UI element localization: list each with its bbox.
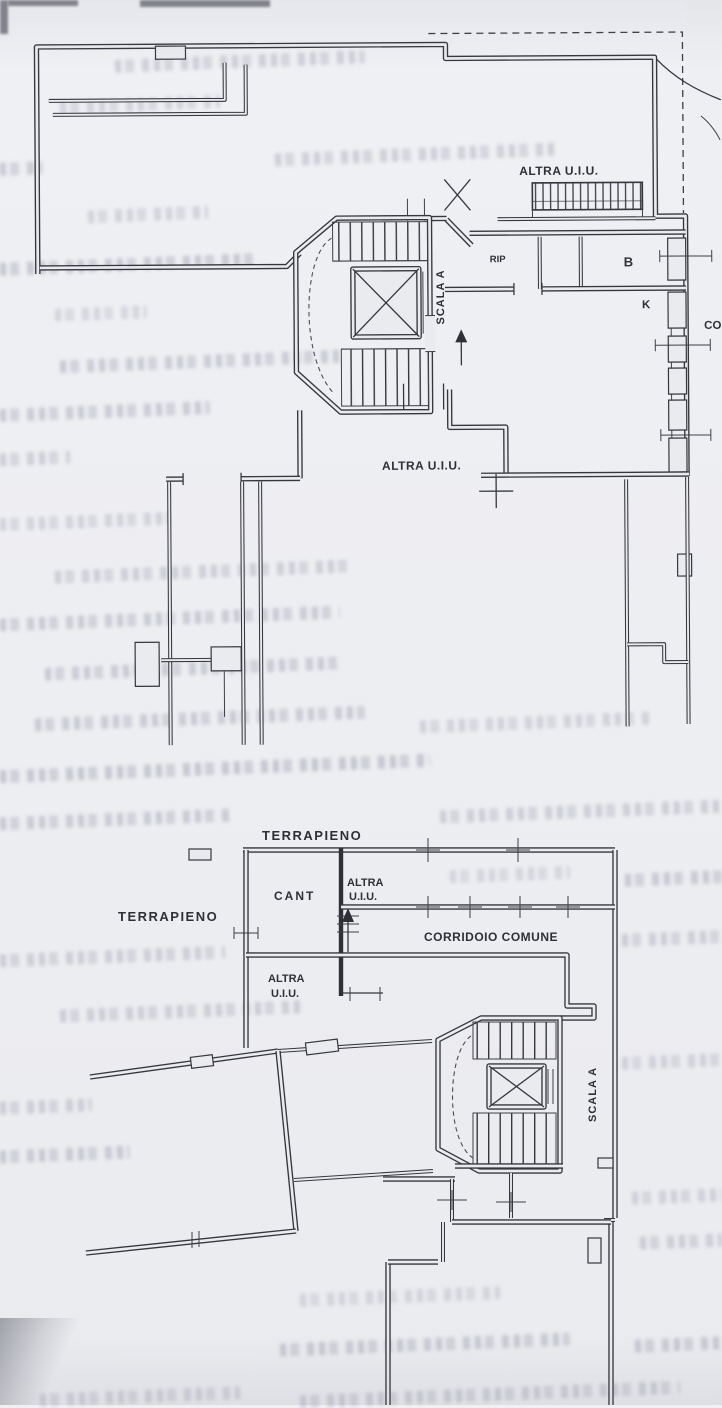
door-symbol — [588, 1238, 601, 1263]
small-shaft — [189, 849, 211, 860]
stair-treads-upper — [333, 222, 428, 262]
label-room-b: B — [624, 254, 633, 269]
label-corridoio-comune: CORRIDOIO COMUNE — [424, 930, 558, 944]
upper-plan: ALTRA U.I.U. — [36, 0, 722, 746]
label-cant: CANT — [274, 889, 315, 903]
landing-door-window-symbol — [407, 179, 470, 220]
stair-direction-arrow — [455, 329, 467, 365]
label-scala-a-lower: SCALA A — [587, 1067, 599, 1122]
page-margin-area — [686, 0, 721, 214]
balcony-hatched — [497, 182, 655, 219]
upper-left-room-partitions — [48, 46, 245, 115]
elevator-shaft — [353, 269, 428, 337]
below-stairs-walls — [383, 1158, 613, 1405]
lower-left-corridor-walls — [134, 410, 302, 745]
label-altra-lower-2: U.I.U. — [271, 988, 299, 1000]
pillar — [155, 46, 185, 59]
elevator-shaft — [489, 1066, 553, 1107]
label-altra-lower-1: ALTRA — [268, 973, 305, 985]
stair-walk-line — [453, 1036, 474, 1158]
label-room-rip: RIP — [490, 254, 507, 265]
staircase-a-lower — [438, 1018, 560, 1171]
terrace-walls — [86, 1039, 433, 1253]
stair-walk-line — [308, 238, 333, 393]
rooms-row-walls — [430, 217, 688, 476]
label-altra-uiu-top: ALTRA U.I.U. — [519, 164, 598, 178]
lower-right-corridor-walls — [450, 388, 691, 727]
stair-treads-lower — [341, 349, 428, 407]
page-corner-shadow — [0, 1318, 92, 1405]
label-room-k: K — [642, 299, 651, 311]
floor-plan-scan: ALTRA U.I.U. — [0, 0, 722, 1405]
stair-treads-lower — [473, 1113, 556, 1168]
label-terrapieno-left: TERRAPIENO — [118, 909, 218, 924]
label-scala-a-upper: SCALA A — [435, 269, 447, 324]
label-altra-upper-1: ALTRA — [347, 877, 384, 889]
stair-treads-upper — [473, 1022, 556, 1059]
label-altra-upper-2: U.I.U. — [349, 891, 377, 903]
label-edge-clipped: CO — [704, 320, 721, 332]
label-terrapieno-top: TERRAPIENO — [262, 828, 362, 843]
label-altra-uiu-mid: ALTRA U.I.U. — [382, 458, 461, 472]
lower-plan: TERRAPIENO TERRAPIENO — [86, 828, 615, 1405]
